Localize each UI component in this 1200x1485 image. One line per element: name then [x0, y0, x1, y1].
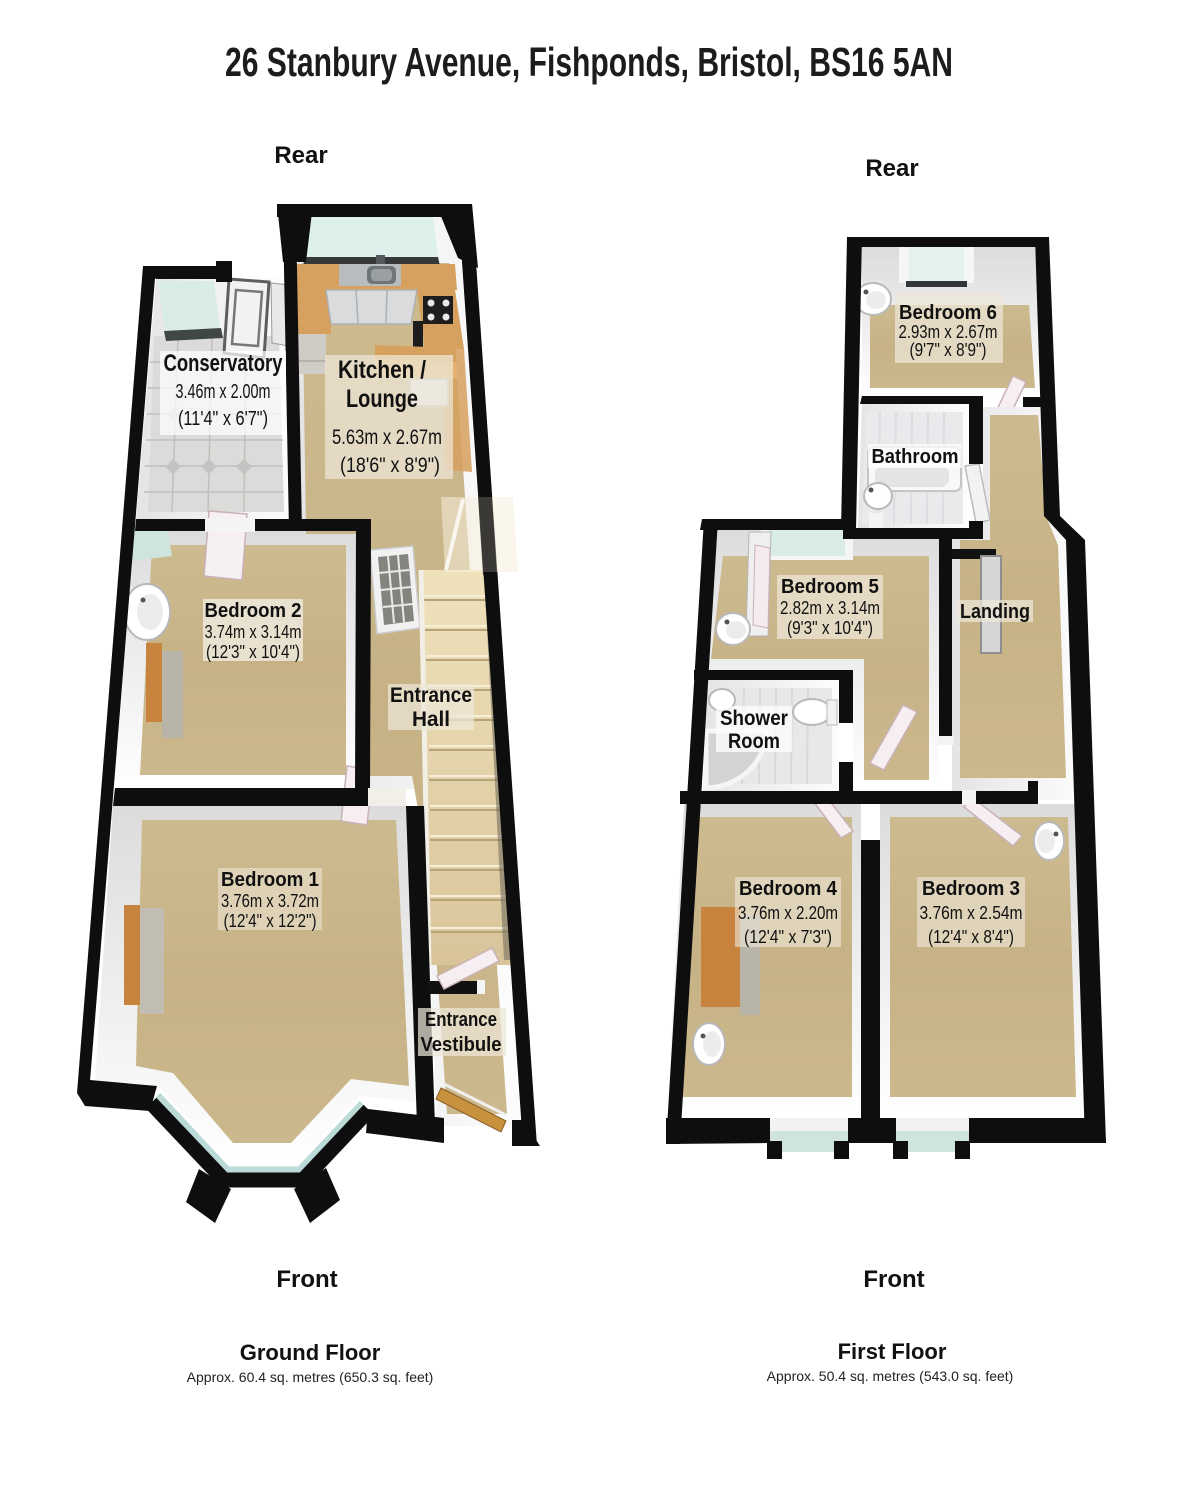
svg-text:Front: Front [276, 1266, 337, 1293]
svg-text:Bedroom 3: Bedroom 3 [922, 878, 1020, 900]
svg-text:Approx. 60.4 sq. metres (650.: Approx. 60.4 sq. metres (650.3 sq. feet) [187, 1369, 434, 1385]
svg-text:Kitchen /: Kitchen / [338, 356, 426, 384]
svg-text:Bedroom 6: Bedroom 6 [899, 302, 997, 324]
svg-text:3.76m x 3.72m: 3.76m x 3.72m [221, 891, 319, 911]
svg-text:Approx. 50.4 sq. metres (543.: Approx. 50.4 sq. metres (543.0 sq. feet) [767, 1368, 1014, 1384]
svg-text:Bedroom 5: Bedroom 5 [781, 576, 879, 598]
svg-text:Front: Front [863, 1266, 924, 1293]
svg-text:(12'4" x 7'3"): (12'4" x 7'3") [744, 927, 832, 947]
svg-text:3.76m x 2.20m: 3.76m x 2.20m [738, 903, 838, 923]
svg-text:Bedroom 2: Bedroom 2 [205, 600, 302, 622]
svg-text:Conservatory: Conservatory [164, 350, 283, 377]
svg-text:Vestibule: Vestibule [421, 1034, 502, 1056]
svg-text:(12'4" x 8'4"): (12'4" x 8'4") [928, 927, 1014, 947]
svg-text:(9'7" x 8'9"): (9'7" x 8'9") [910, 340, 987, 360]
svg-text:Bedroom 4: Bedroom 4 [739, 878, 838, 900]
svg-text:26 Stanbury Avenue, Fishponds,: 26 Stanbury Avenue, Fishponds, Bristol, … [225, 39, 953, 85]
svg-text:3.46m x 2.00m: 3.46m x 2.00m [176, 381, 271, 403]
svg-text:(11'4" x 6'7"): (11'4" x 6'7") [178, 408, 268, 430]
svg-text:Entrance: Entrance [390, 684, 472, 707]
svg-text:(12'4" x 12'2"): (12'4" x 12'2") [224, 911, 317, 931]
svg-text:Hall: Hall [412, 708, 450, 731]
svg-text:(18'6" x 8'9"): (18'6" x 8'9") [340, 454, 440, 477]
svg-text:3.74m x 3.14m: 3.74m x 3.14m [205, 622, 302, 642]
svg-text:Bedroom 1: Bedroom 1 [221, 869, 319, 891]
svg-text:5.63m x 2.67m: 5.63m x 2.67m [332, 426, 442, 449]
svg-text:2.82m x 3.14m: 2.82m x 3.14m [780, 598, 880, 618]
svg-text:First Floor: First Floor [838, 1339, 947, 1364]
svg-text:Rear: Rear [274, 142, 327, 169]
svg-text:Entrance: Entrance [425, 1009, 497, 1031]
svg-text:Landing: Landing [960, 601, 1030, 623]
svg-text:Ground Floor: Ground Floor [240, 1340, 381, 1365]
svg-text:2.93m x 2.67m: 2.93m x 2.67m [899, 322, 998, 342]
svg-text:(12'3" x 10'4"): (12'3" x 10'4") [206, 642, 300, 662]
svg-text:Room: Room [728, 730, 780, 753]
svg-text:3.76m x 2.54m: 3.76m x 2.54m [920, 903, 1023, 923]
svg-text:Bathroom: Bathroom [872, 446, 959, 468]
svg-text:(9'3" x 10'4"): (9'3" x 10'4") [787, 618, 873, 638]
svg-text:Lounge: Lounge [346, 385, 418, 413]
svg-text:Rear: Rear [865, 155, 918, 182]
svg-text:Shower: Shower [720, 707, 788, 730]
